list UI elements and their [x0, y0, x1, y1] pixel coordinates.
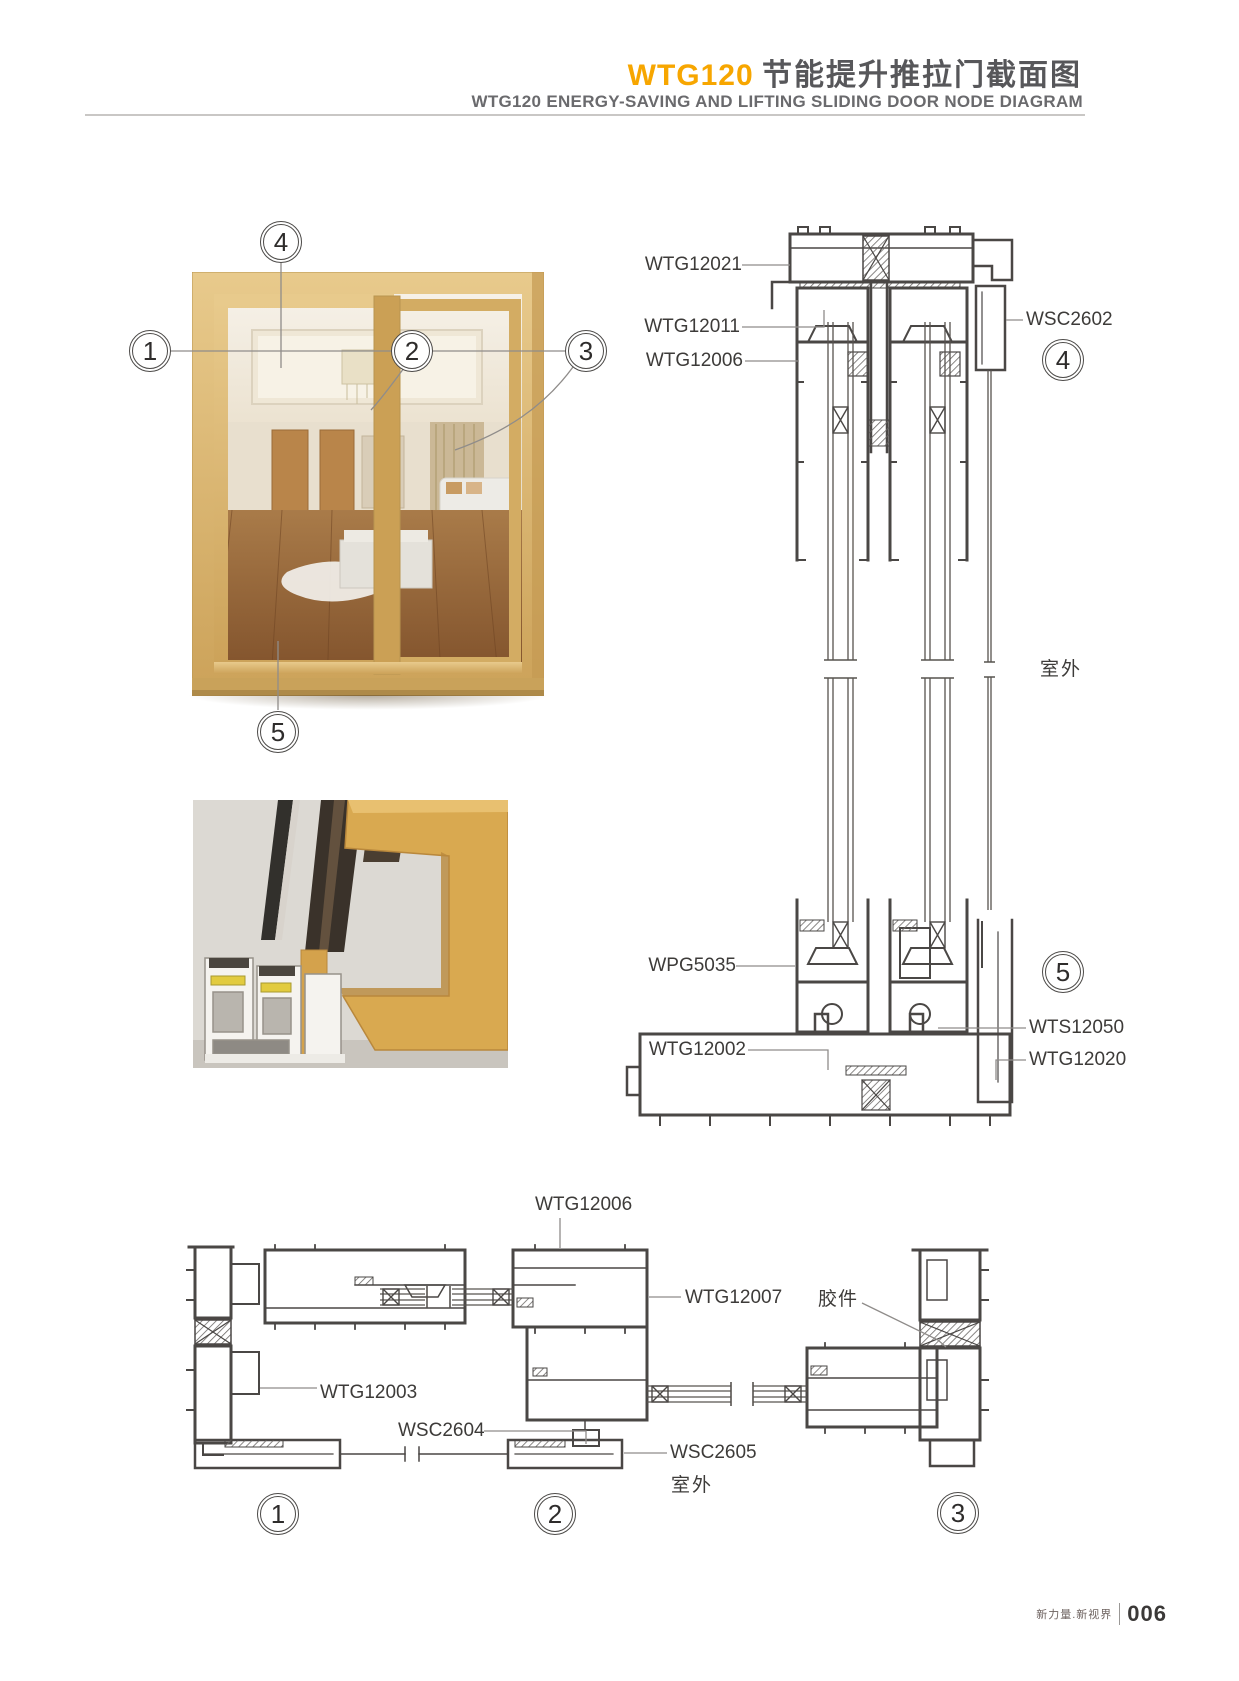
label-wtg12003: WTG12003 — [320, 1382, 417, 1404]
label-wtg12002: WTG12002 — [649, 1039, 746, 1061]
label-wtg12020: WTG12020 — [1029, 1049, 1126, 1071]
callout-section-5: 5 — [1042, 951, 1084, 993]
callout-photo-3: 3 — [565, 330, 607, 372]
leader-lines — [0, 0, 1239, 1681]
callout-section-1: 1 — [257, 1493, 299, 1535]
footer-divider — [1119, 1603, 1120, 1625]
callout-photo-1: 1 — [129, 330, 171, 372]
callout-section-4: 4 — [1042, 339, 1084, 381]
label-rubber-part: 胶件 — [818, 1289, 858, 1311]
callout-number: 1 — [271, 1501, 285, 1527]
callout-number: 3 — [951, 1500, 965, 1526]
label-outdoor-horizontal: 室外 — [671, 1475, 713, 1497]
label-outdoor-vertical: 室外 — [1040, 659, 1082, 681]
callout-number: 5 — [271, 719, 285, 745]
label-wtg12011: WTG12011 — [644, 316, 740, 338]
callout-photo-2: 2 — [391, 330, 433, 372]
callout-number: 3 — [579, 338, 593, 364]
label-wpg5035: WPG5035 — [648, 955, 736, 977]
callout-photo-4: 4 — [260, 221, 302, 263]
callout-number: 4 — [274, 229, 288, 255]
callout-number: 2 — [405, 338, 419, 364]
label-wtg12006-v: WTG12006 — [646, 350, 743, 372]
page-footer: 新力量.新视界 006 — [1036, 1601, 1167, 1627]
footer-page-number: 006 — [1127, 1601, 1167, 1627]
label-wsc2604: WSC2604 — [398, 1420, 485, 1442]
callout-section-2: 2 — [534, 1493, 576, 1535]
callout-section-3: 3 — [937, 1492, 979, 1534]
label-wsc2602: WSC2602 — [1026, 309, 1113, 331]
callout-number: 4 — [1056, 347, 1070, 373]
label-wts12050: WTS12050 — [1029, 1017, 1124, 1039]
callout-photo-5: 5 — [257, 711, 299, 753]
catalog-page: WTG120 节能提升推拉门截面图 WTG120 ENERGY-SAVING A… — [0, 0, 1239, 1681]
label-wtg12006-h: WTG12006 — [535, 1194, 632, 1216]
callout-number: 2 — [548, 1501, 562, 1527]
callout-number: 5 — [1056, 959, 1070, 985]
footer-slogan: 新力量.新视界 — [1036, 1606, 1112, 1622]
callout-number: 1 — [143, 338, 157, 364]
label-wsc2605: WSC2605 — [670, 1442, 757, 1464]
label-wtg12021: WTG12021 — [645, 254, 742, 276]
label-wtg12007: WTG12007 — [685, 1287, 782, 1309]
